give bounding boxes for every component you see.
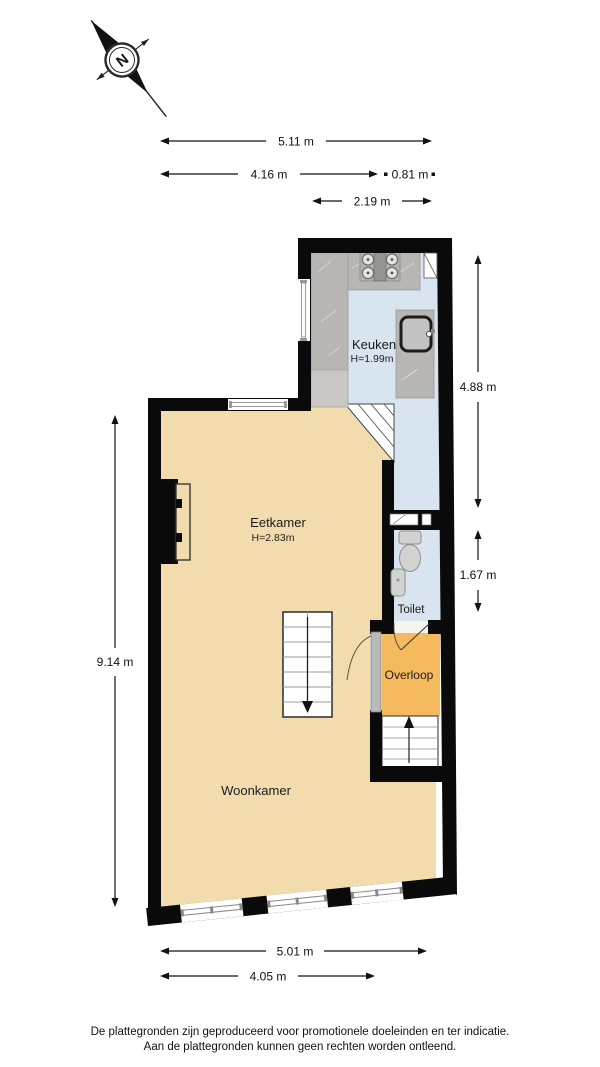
dim-top-1: 5.11 m [160, 135, 432, 149]
footer-line-1: De plattegronden zijn geproduceerd voor … [91, 1026, 510, 1038]
wall-left [148, 398, 161, 922]
toilet-vent-window [390, 514, 431, 525]
dim-label: 5.01 m [277, 945, 314, 959]
kitchen-right-window [424, 253, 437, 278]
dim-label: 0.81 m [392, 168, 429, 182]
floorplan-svg: Keuken H=1.99m Eetkamer H=2.83m Toilet O… [0, 0, 600, 1067]
dim-top-2: 4.16 m [160, 168, 378, 182]
dim-label: 4.05 m [250, 970, 287, 984]
dim-bottom-1: 5.01 m [160, 945, 427, 959]
dining-top-window [228, 399, 288, 410]
dim-top-3: 0.81 m [384, 168, 435, 182]
overloop-label: Overloop [385, 668, 434, 682]
stairs-down-icon [283, 612, 332, 717]
dim-right-2: 1.67 m [460, 530, 497, 612]
dim-label: 4.88 m [460, 380, 497, 394]
compass-icon: N [66, 0, 193, 136]
dim-right-1: 4.88 m [460, 255, 497, 508]
kitchen-left-window [298, 279, 310, 341]
toilet-icon [399, 531, 421, 572]
dim-label: 5.11 m [278, 135, 314, 149]
footer-disclaimer: De plattegronden zijn geproduceerd voor … [91, 1026, 510, 1053]
eetkamer-height: H=2.83m [252, 532, 295, 544]
dim-label: 4.16 m [251, 168, 288, 182]
kitchen-sink-icon [396, 310, 435, 398]
stairs-up-icon [382, 716, 438, 768]
wall-stairwell-bottom [370, 766, 450, 782]
keuken-height: H=1.99m [351, 353, 394, 365]
woonkamer-label: Woonkamer [221, 783, 292, 798]
wall-landing-top-right [428, 620, 442, 634]
dim-bottom-2: 4.05 m [160, 970, 375, 984]
keuken-label: Keuken [352, 337, 396, 352]
eetkamer-label: Eetkamer [250, 515, 306, 530]
dim-label: 9.14 m [97, 655, 134, 669]
dim-label: 1.67 m [460, 568, 497, 582]
wall-toilet-left [382, 460, 394, 632]
dim-left-1: 9.14 m [97, 415, 134, 907]
wall-landing-top-left [382, 620, 394, 634]
wall-kitchen-top [298, 238, 452, 253]
floorplan-page: Keuken H=1.99m Eetkamer H=2.83m Toilet O… [0, 0, 600, 1067]
dim-top-4: 2.19 m [312, 195, 432, 209]
fireplace-icon [161, 479, 190, 564]
dim-label: 2.19 m [354, 195, 391, 209]
stove-icon [360, 252, 400, 281]
kitchen-appliance [311, 370, 348, 407]
footer-line-2: Aan de plattegronden kunnen geen rechten… [144, 1041, 457, 1053]
washbasin-icon [391, 569, 405, 596]
toilet-label: Toilet [398, 604, 426, 616]
